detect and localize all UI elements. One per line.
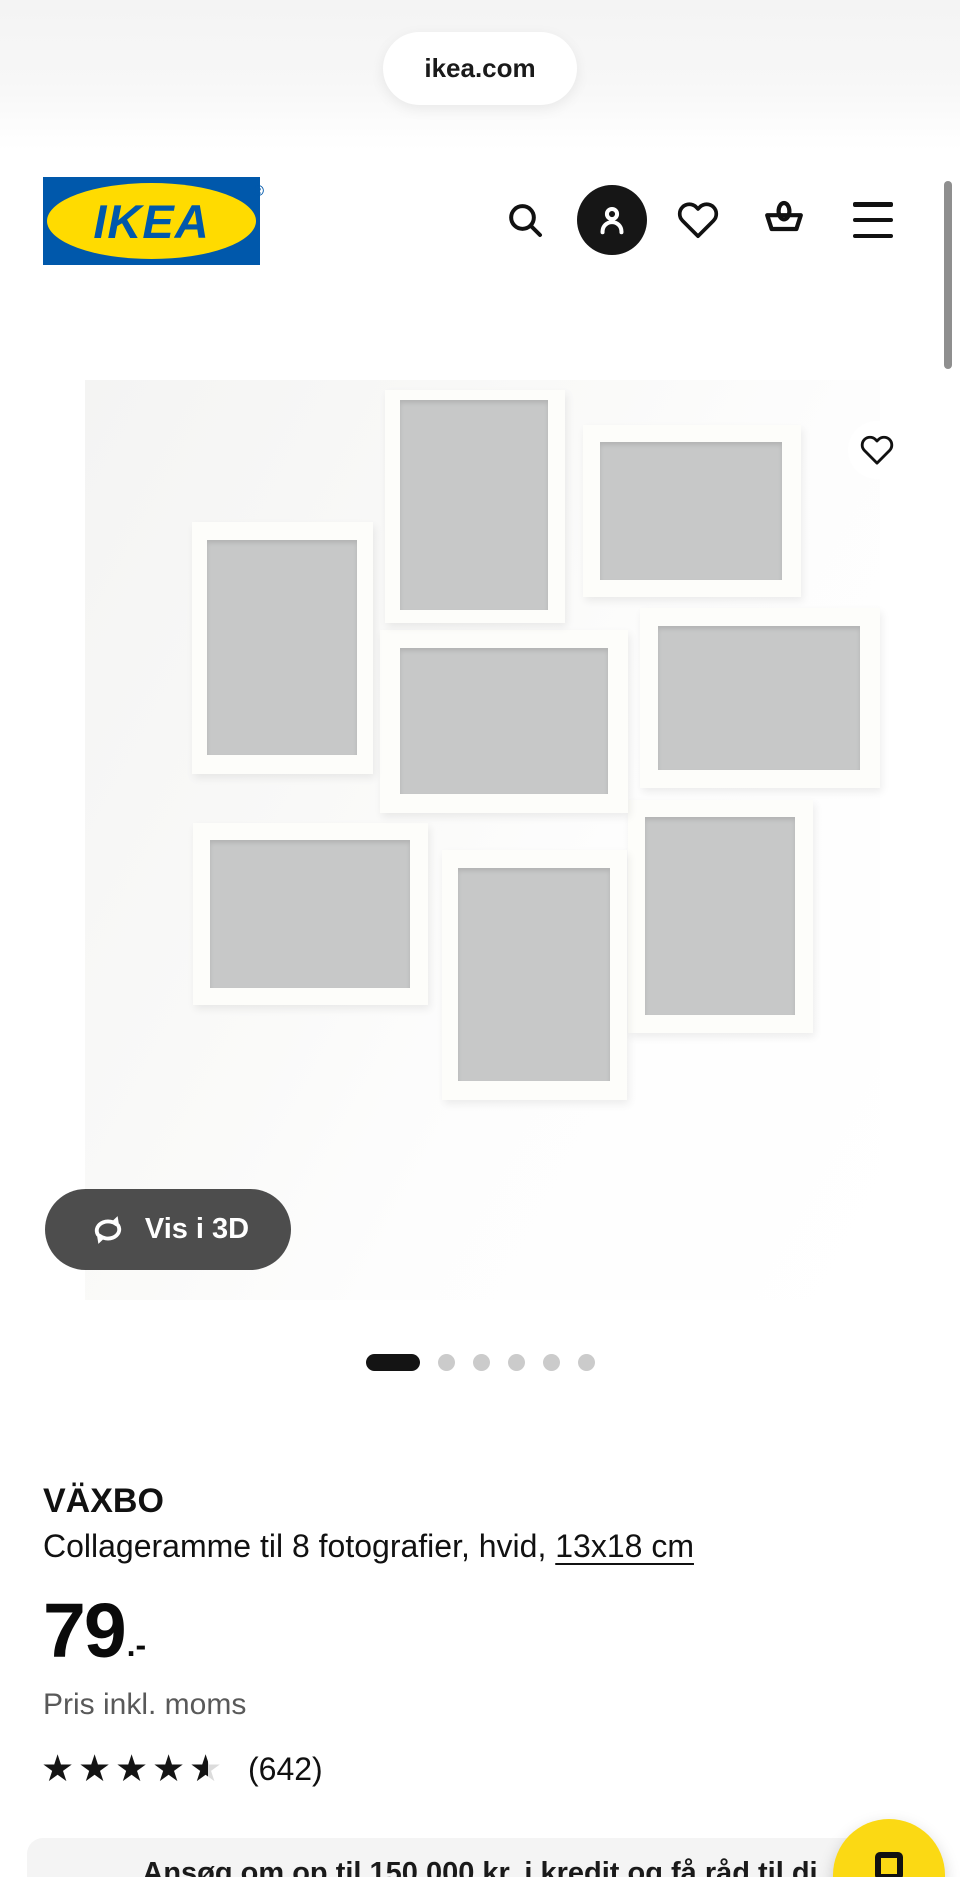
price: 79 .- — [43, 1598, 146, 1666]
photo-frame — [640, 608, 880, 788]
frame-opening — [207, 540, 357, 755]
photo-frame — [192, 522, 373, 774]
frame-opening — [400, 400, 548, 610]
photo-frame — [628, 800, 813, 1033]
favorite-button[interactable] — [848, 421, 906, 479]
square-outline-icon — [875, 1852, 903, 1877]
carousel-dot[interactable] — [473, 1354, 490, 1371]
browser-url-pill[interactable]: ikea.com — [383, 32, 577, 105]
photo-frame — [380, 630, 628, 813]
photo-frame — [442, 850, 627, 1100]
view-3d-label: Vis i 3D — [145, 1213, 249, 1246]
favorites-heart-icon[interactable] — [677, 196, 719, 244]
frame-opening — [210, 840, 410, 988]
frame-opening — [458, 868, 610, 1081]
product-image-carousel[interactable] — [85, 380, 880, 1300]
url-text: ikea.com — [424, 53, 535, 84]
carousel-dot[interactable] — [438, 1354, 455, 1371]
profile-icon[interactable] — [577, 185, 647, 255]
menu-icon[interactable] — [853, 202, 893, 238]
product-name: VÄXBO — [43, 1482, 164, 1521]
photo-frame — [583, 425, 801, 597]
frame-opening — [645, 817, 795, 1015]
search-icon[interactable] — [505, 196, 545, 244]
registered-trademark-icon: ® — [252, 183, 264, 201]
carousel-dot[interactable] — [508, 1354, 525, 1371]
carousel-indicators — [0, 1354, 960, 1371]
carousel-dot[interactable] — [366, 1354, 420, 1371]
rotate-3d-icon — [87, 1209, 129, 1251]
frame-opening — [600, 442, 782, 580]
carousel-dot[interactable] — [578, 1354, 595, 1371]
star-icon: ★★ — [189, 1748, 226, 1790]
shopping-basket-icon[interactable] — [760, 196, 808, 244]
frame-opening — [400, 648, 608, 794]
scrollbar-thumb[interactable] — [944, 181, 952, 369]
carousel-dot[interactable] — [543, 1354, 560, 1371]
photo-frame — [193, 823, 428, 1005]
star-icon: ★ — [152, 1748, 189, 1790]
frame-opening — [658, 626, 860, 770]
rating[interactable]: ★★★★★★ (642) — [41, 1748, 323, 1790]
review-count: (642) — [248, 1751, 323, 1788]
size-link[interactable]: 13x18 cm — [555, 1528, 694, 1564]
star-icon: ★ — [78, 1748, 115, 1790]
price-note: Pris inkl. moms — [43, 1688, 246, 1722]
floating-action-button[interactable] — [833, 1819, 945, 1877]
product-description: Collageramme til 8 fotografier, hvid, 13… — [43, 1528, 694, 1565]
star-icon: ★ — [115, 1748, 152, 1790]
heart-outline-icon — [860, 433, 894, 467]
promo-text: Ansøg om op til 150.000 kr. i kredit og … — [142, 1857, 817, 1877]
ikea-logo[interactable]: IKEA ® — [43, 177, 260, 265]
star-icon: ★ — [41, 1748, 78, 1790]
view-3d-button[interactable]: Vis i 3D — [45, 1189, 291, 1270]
star-rating-icons: ★★★★★★ — [41, 1748, 226, 1790]
price-suffix: .- — [127, 1627, 147, 1664]
photo-frame — [385, 390, 565, 623]
promo-banner[interactable]: Ansøg om op til 150.000 kr. i kredit og … — [27, 1838, 933, 1877]
person-glyph — [591, 199, 633, 241]
price-integer: 79 — [43, 1598, 125, 1666]
logo-wordmark: IKEA — [43, 177, 260, 265]
description-text: Collageramme til 8 fotografier, hvid, — [43, 1528, 555, 1564]
ikea-product-page: ikea.com IKEA ® — [0, 0, 960, 1877]
